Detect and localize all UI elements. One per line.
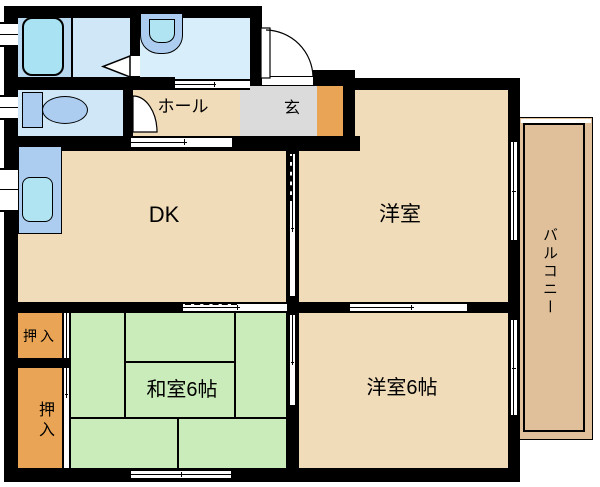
wall-washroom-right — [250, 6, 262, 86]
genkan-label: 玄 — [258, 100, 326, 118]
bathroom-window — [0, 22, 18, 47]
bathroom-door-slot — [130, 55, 140, 77]
western-bottom-label: 洋室6帖 — [328, 377, 476, 400]
tatami-line — [124, 313, 126, 419]
dk-western-door-track — [290, 156, 292, 201]
floorplan: ホール 玄 DK 洋室 和室6帖 洋室6帖 押入 押入 バルコニー — [0, 0, 600, 487]
wall-bottom — [4, 468, 520, 482]
kitchen-window — [0, 168, 18, 212]
hall-dk-sliding-door — [131, 136, 232, 149]
entrance-door-swing-arc — [266, 30, 313, 77]
dk-label: DK — [118, 202, 210, 227]
tatami-line — [177, 419, 179, 468]
wall-bath-bottom — [18, 77, 175, 90]
hall-label: ホール — [131, 97, 235, 117]
wall-top-right — [343, 78, 508, 90]
washroom-hall-sliding-door — [175, 79, 250, 90]
toilet-tank-icon — [22, 92, 43, 128]
western-top-label: 洋室 — [330, 203, 470, 227]
room-bathroom — [73, 18, 130, 77]
toilet-bowl-icon — [42, 96, 88, 124]
room-western-top-upper — [355, 90, 508, 151]
closet-sliding-door — [62, 313, 71, 468]
balcony-label: バルコニー — [536, 207, 558, 337]
tatami-line — [124, 361, 236, 363]
dk-japanese-door-track — [185, 303, 237, 305]
western-top-balcony-window — [509, 142, 519, 240]
japanese-western-fusuma-door — [288, 315, 297, 405]
closet-top-label: 押入 — [18, 328, 62, 344]
entrance-door-leaf — [261, 28, 270, 78]
western-western-sliding-door — [350, 302, 467, 313]
bathtub-icon — [22, 17, 64, 76]
wall-closet-divider — [18, 358, 70, 368]
toilet-window — [0, 95, 18, 120]
western-bottom-balcony-window — [509, 320, 519, 415]
washbasin-sink — [149, 19, 175, 43]
kitchen-sink-icon — [22, 177, 53, 222]
closet-bottom-label: 押入 — [29, 385, 53, 457]
wall-left — [4, 6, 18, 482]
japanese-room-window — [131, 469, 231, 480]
japanese-room-label: 和室6帖 — [108, 379, 256, 402]
entrance-threshold — [262, 76, 313, 86]
tatami-line — [234, 313, 236, 419]
